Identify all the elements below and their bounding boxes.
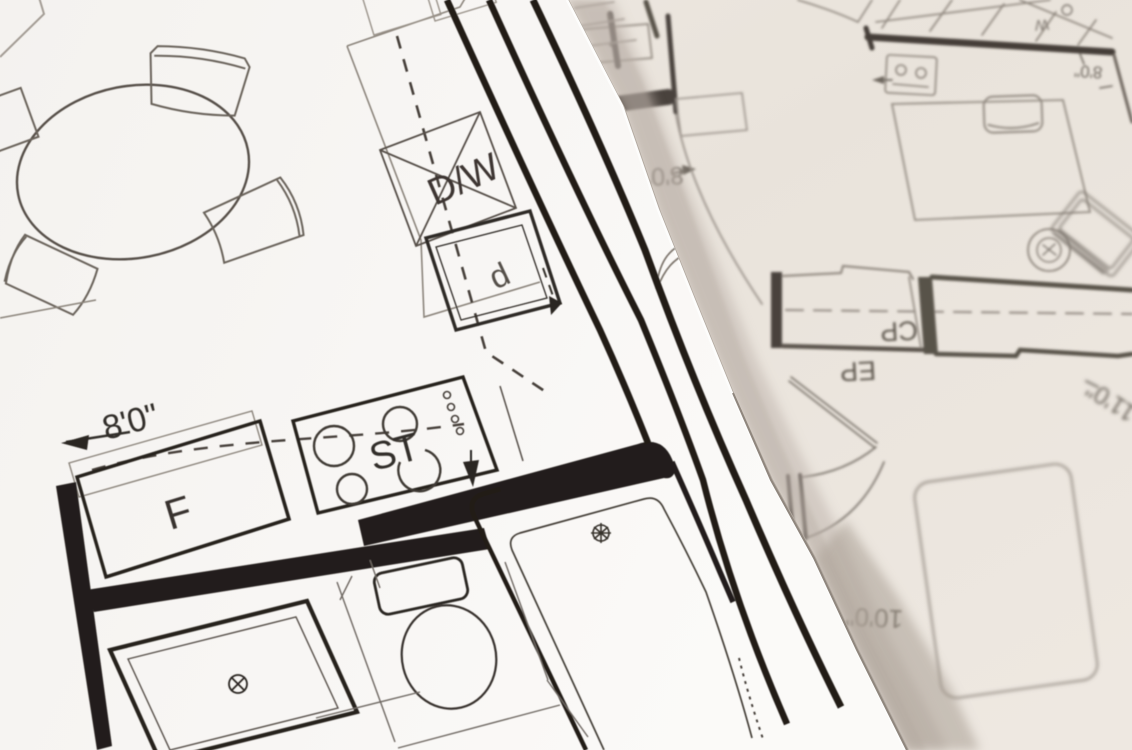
svg-text:EP: EP	[839, 355, 877, 387]
svg-text:CP: CP	[879, 315, 918, 347]
svg-text:W: W	[1033, 16, 1049, 34]
svg-text:8'0": 8'0"	[1074, 61, 1103, 82]
